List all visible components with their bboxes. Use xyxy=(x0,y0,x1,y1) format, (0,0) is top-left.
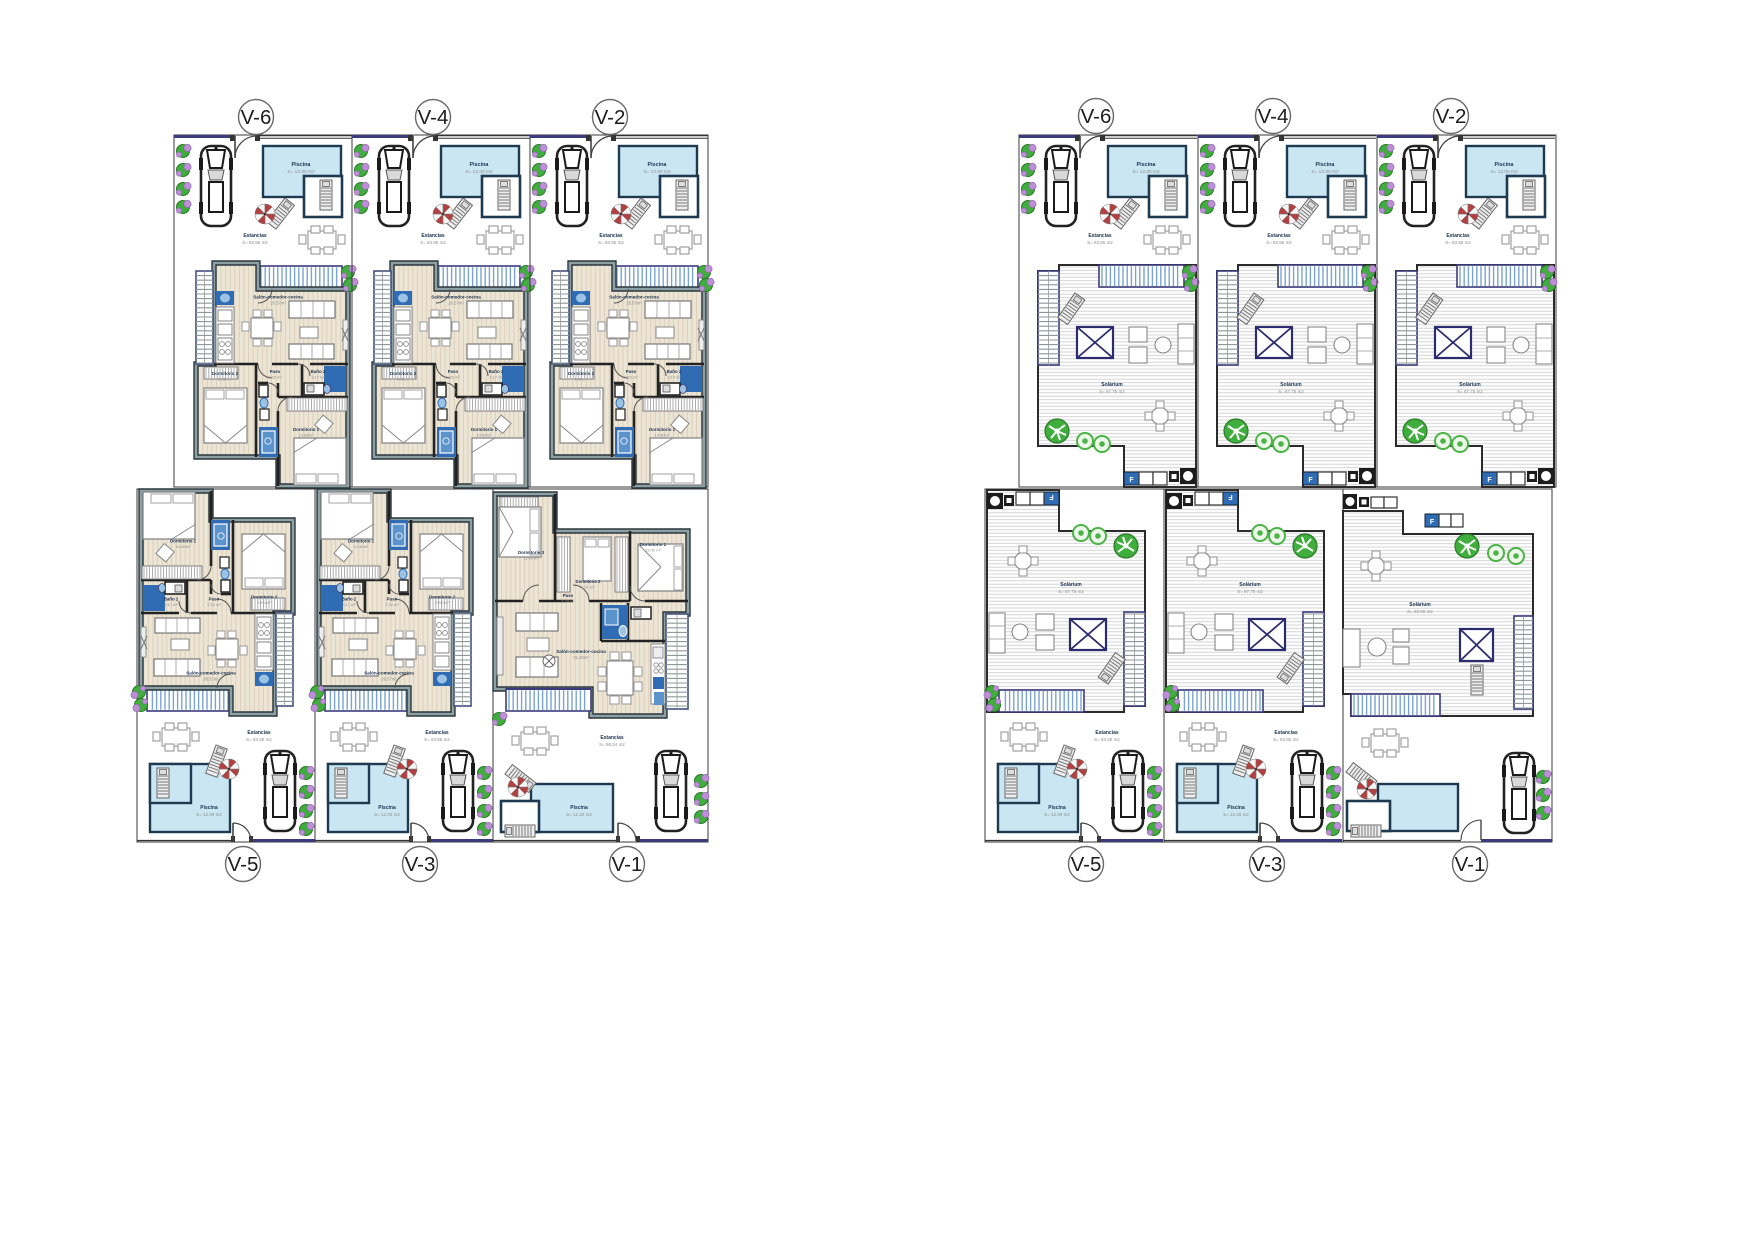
svg-text:Salón-comedor-cocina: Salón-comedor-cocina xyxy=(556,649,606,654)
svg-text:V-6: V-6 xyxy=(241,106,272,129)
svg-text:V-4: V-4 xyxy=(1258,105,1289,128)
svg-text:S= 98.24 m2: S= 98.24 m2 xyxy=(599,742,625,747)
svg-text:V-3: V-3 xyxy=(1252,853,1283,876)
svg-text:S= 83.88 m2: S= 83.88 m2 xyxy=(1407,609,1433,614)
svg-text:V-1: V-1 xyxy=(612,853,643,876)
svg-text:F: F xyxy=(1430,519,1435,526)
svg-text:7.78 m²: 7.78 m² xyxy=(561,599,575,604)
svg-text:Piscina: Piscina xyxy=(570,805,588,811)
svg-text:Dormitorio 3: Dormitorio 3 xyxy=(518,550,545,555)
svg-text:V-6: V-6 xyxy=(1081,105,1112,128)
svg-text:13.42 m²: 13.42 m² xyxy=(645,548,661,553)
svg-text:V-3: V-3 xyxy=(405,853,436,876)
svg-text:V-4: V-4 xyxy=(418,106,449,129)
svg-text:11.42 m²: 11.42 m² xyxy=(523,556,539,561)
svg-text:Estancias: Estancias xyxy=(600,735,624,741)
svg-text:V-2: V-2 xyxy=(595,106,626,129)
svg-text:V-1: V-1 xyxy=(1455,853,1486,876)
svg-text:V-2: V-2 xyxy=(1436,105,1467,128)
svg-text:Paso: Paso xyxy=(563,593,574,598)
svg-text:7.91 m²: 7.91 m² xyxy=(581,585,595,590)
svg-text:Solárium: Solárium xyxy=(1409,602,1431,608)
svg-text:S= 12.30 m2: S= 12.30 m2 xyxy=(566,812,592,817)
svg-text:V-5: V-5 xyxy=(1071,853,1102,876)
svg-text:Dormitorio 2: Dormitorio 2 xyxy=(576,579,602,584)
svg-text:31.20m²: 31.20m² xyxy=(573,655,589,660)
svg-text:V-5: V-5 xyxy=(228,853,259,876)
svg-text:Dormitorio 1: Dormitorio 1 xyxy=(640,542,667,547)
